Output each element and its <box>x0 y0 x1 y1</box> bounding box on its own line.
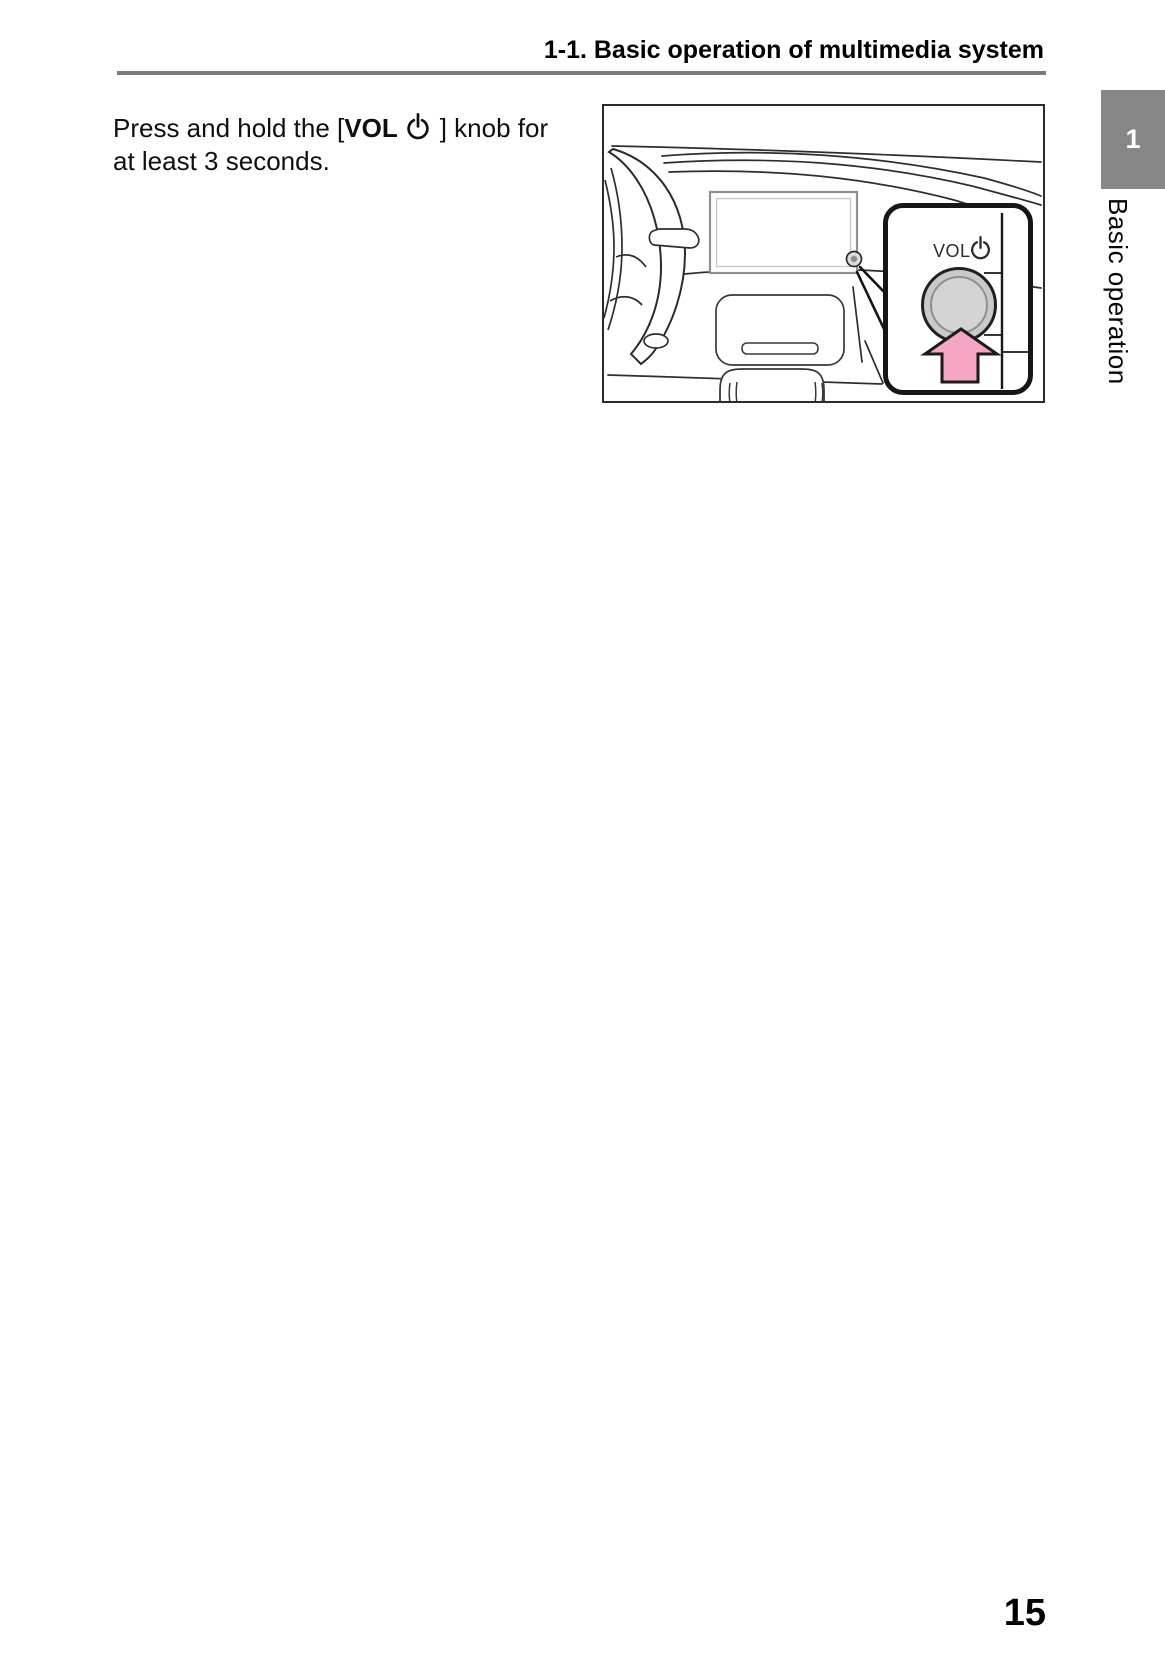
dash-right-seam <box>853 287 862 362</box>
center-console <box>716 295 844 365</box>
instruction-text: Press and hold the [VOL ] knob for at le… <box>113 112 548 178</box>
instruction-line-2: at least 3 seconds. <box>113 145 548 178</box>
dash-right-diagonal <box>865 341 883 383</box>
dashboard-illustration: VOL <box>602 104 1045 403</box>
display-screen <box>710 192 857 273</box>
steering-wheel <box>604 149 699 364</box>
header-rule <box>117 71 1046 75</box>
page-number: 15 <box>1004 1592 1046 1635</box>
wiper-stalk <box>649 229 698 248</box>
instruction-suffix: ] knob for <box>440 113 548 143</box>
chapter-tab: 1 <box>1101 90 1165 189</box>
manual-page: 1-1. Basic operation of multimedia syste… <box>0 0 1165 1653</box>
up-arrow-icon <box>888 208 1028 390</box>
chapter-number: 1 <box>1125 124 1140 155</box>
power-icon <box>405 112 431 140</box>
vol-label: VOL <box>344 113 397 143</box>
page-title: 1-1. Basic operation of multimedia syste… <box>544 36 1044 65</box>
seat-headrest <box>720 369 824 401</box>
instruction-line-1: Press and hold the [VOL ] knob for <box>113 112 548 145</box>
steering-column <box>644 334 668 348</box>
knob-callout: VOL <box>883 203 1033 395</box>
chapter-title-vertical: Basic operation <box>1102 198 1133 418</box>
windshield-line <box>612 146 1041 162</box>
instruction-prefix: Press and hold the [ <box>113 113 344 143</box>
power-knob-small <box>847 252 862 267</box>
